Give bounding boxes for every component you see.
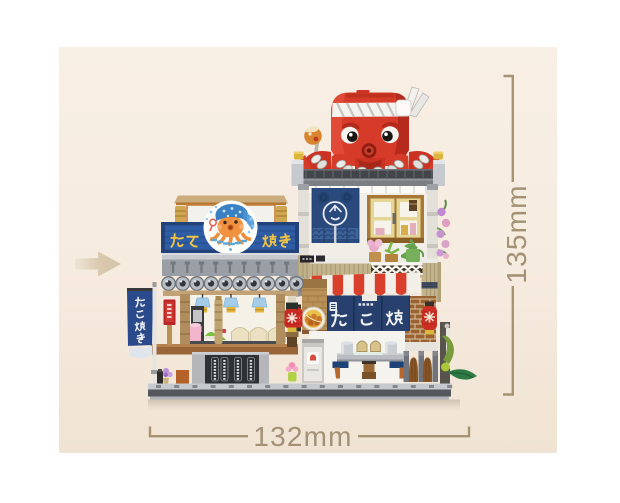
svg-text:132mm: 132mm [253,421,352,452]
svg-text:135mm: 135mm [501,184,532,283]
